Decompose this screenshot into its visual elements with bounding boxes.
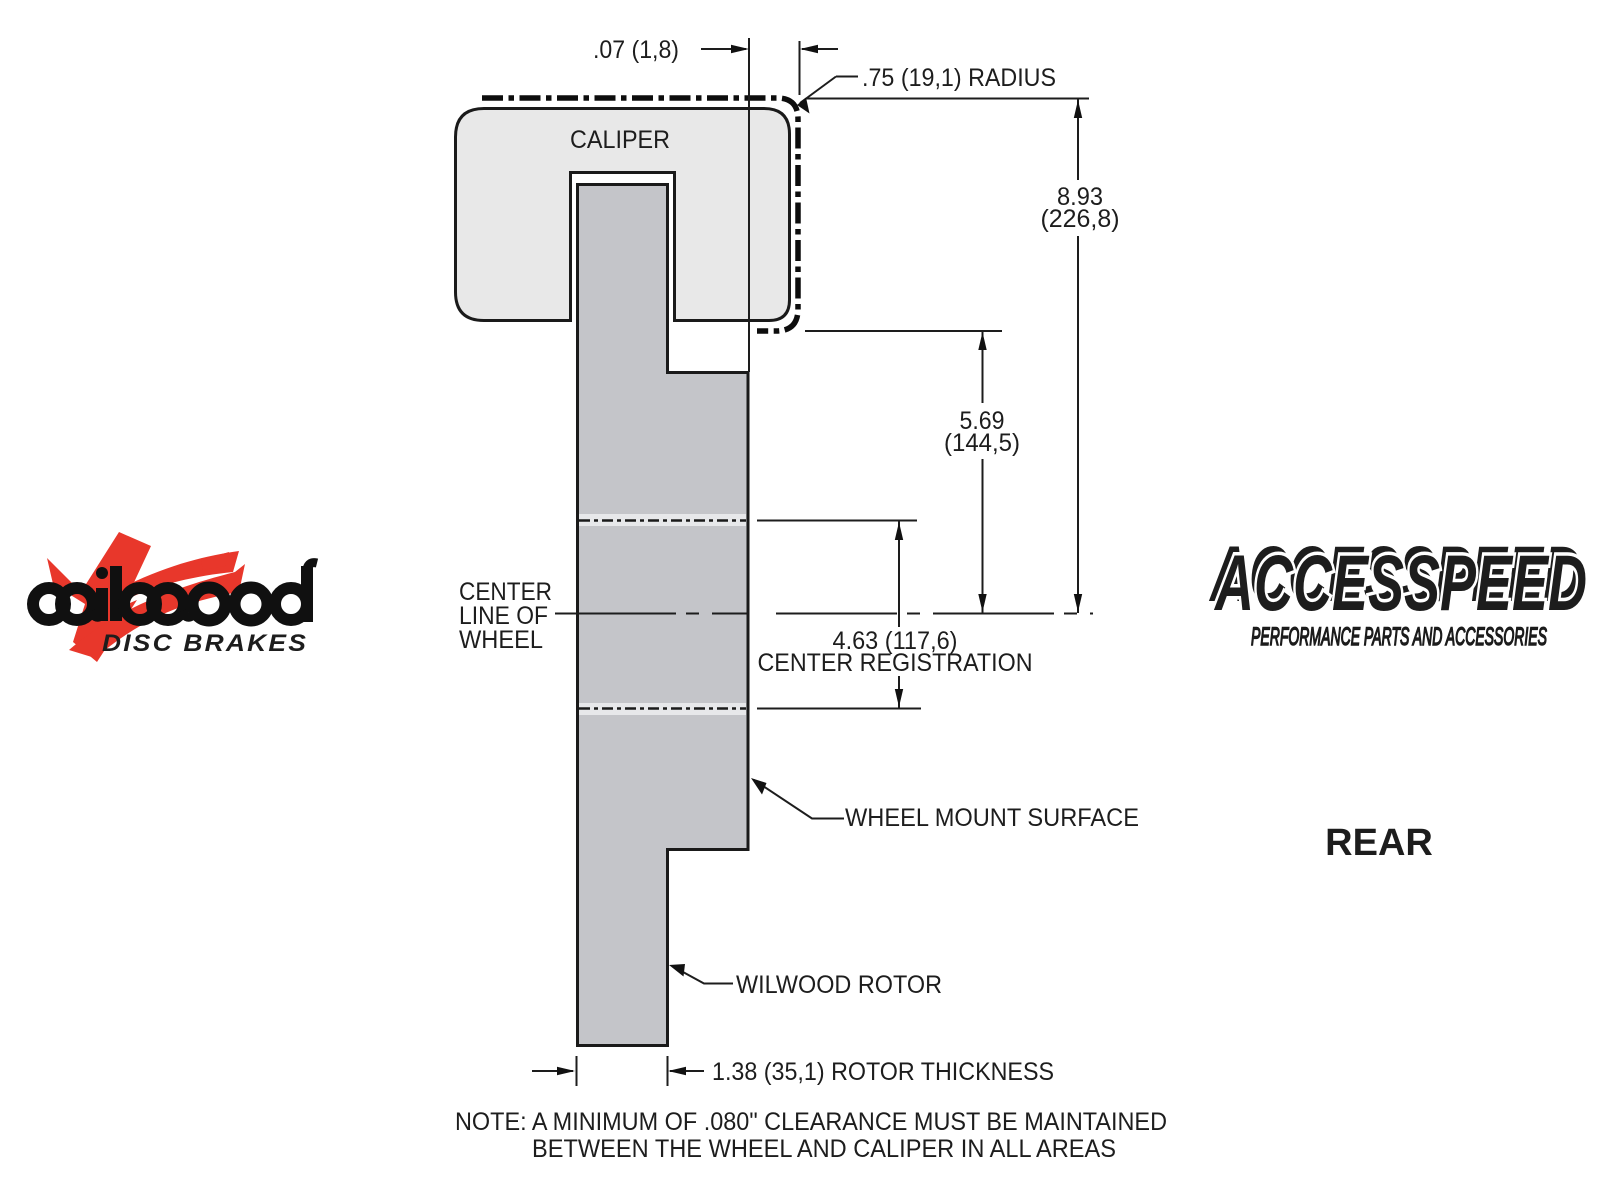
svg-text:.75 (19,1) RADIUS: .75 (19,1) RADIUS (862, 64, 1056, 92)
svg-text:ACCESSPEED: ACCESSPEED (1214, 538, 1587, 627)
svg-text:WILWOOD ROTOR: WILWOOD ROTOR (736, 971, 942, 999)
svg-text:1.38 (35,1) ROTOR THICKNESS: 1.38 (35,1) ROTOR THICKNESS (712, 1058, 1054, 1086)
svg-text:(144,5): (144,5) (944, 429, 1020, 457)
svg-text:WHEEL MOUNT SURFACE: WHEEL MOUNT SURFACE (845, 804, 1139, 832)
svg-text:.07 (1,8): .07 (1,8) (593, 36, 679, 64)
svg-text:BETWEEN THE WHEEL AND CALIPER: BETWEEN THE WHEEL AND CALIPER IN ALL ARE… (532, 1135, 1116, 1163)
svg-text:CALIPER: CALIPER (570, 126, 670, 154)
svg-text:WHEEL: WHEEL (459, 626, 543, 654)
svg-text:CENTER REGISTRATION: CENTER REGISTRATION (758, 649, 1033, 677)
svg-text:DISC BRAKES: DISC BRAKES (102, 630, 308, 657)
svg-text:PERFORMANCE PARTS AND ACCESSOR: PERFORMANCE PARTS AND ACCESSORIES (1251, 623, 1547, 651)
svg-text:NOTE: A MINIMUM OF .080" CLEAR: NOTE: A MINIMUM OF .080" CLEARANCE MUST … (455, 1108, 1167, 1136)
svg-text:REAR: REAR (1325, 822, 1433, 864)
svg-text:(226,8): (226,8) (1041, 205, 1120, 233)
